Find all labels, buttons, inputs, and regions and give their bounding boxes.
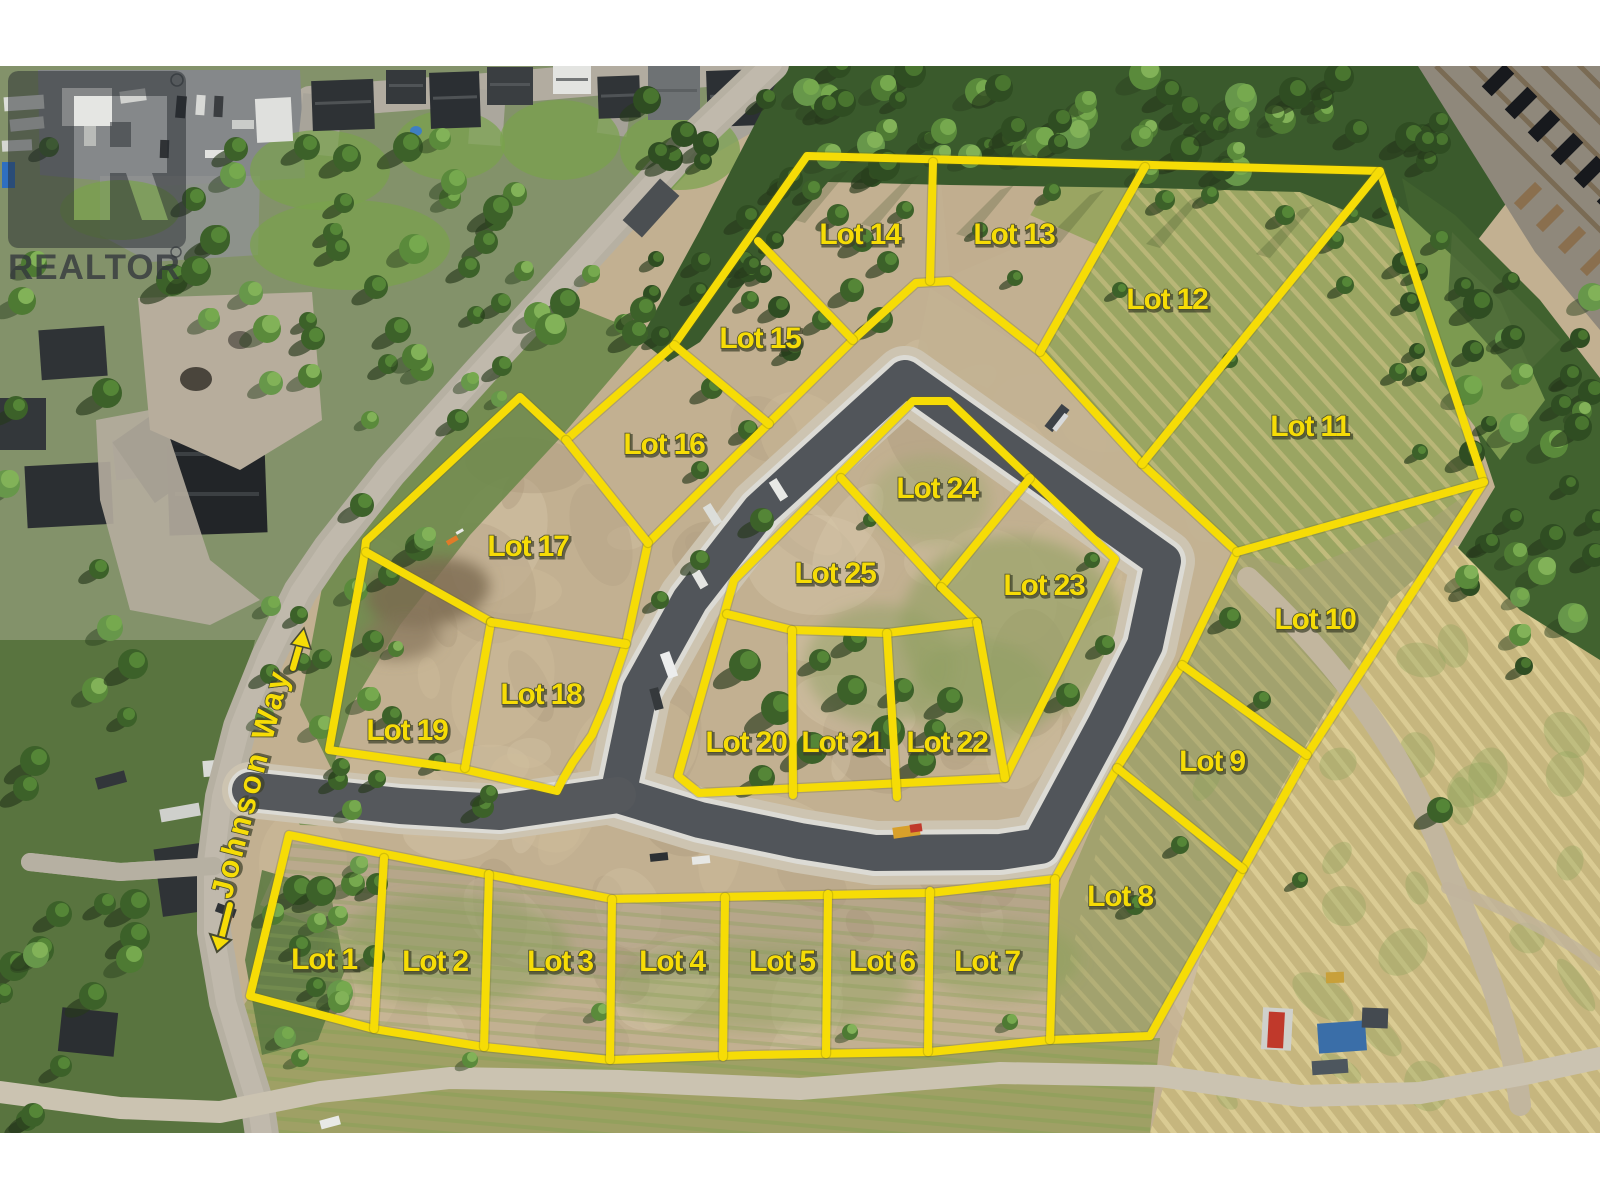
svg-text:Lot 13: Lot 13 [973, 218, 1055, 251]
svg-text:Lot 19: Lot 19 [366, 714, 448, 747]
svg-text:Lot 1: Lot 1 [291, 943, 357, 976]
svg-text:Lot 18: Lot 18 [500, 678, 582, 711]
svg-text:Lot 8: Lot 8 [1087, 880, 1153, 913]
svg-text:Lot 25: Lot 25 [794, 557, 876, 590]
svg-text:Lot 2: Lot 2 [402, 945, 468, 978]
svg-text:Lot 11: Lot 11 [1270, 410, 1350, 443]
svg-text:Lot 7: Lot 7 [954, 945, 1020, 978]
svg-text:Lot 22: Lot 22 [906, 726, 988, 759]
svg-text:Lot 15: Lot 15 [719, 322, 801, 355]
svg-text:Lot 5: Lot 5 [749, 945, 815, 978]
svg-text:Lot 3: Lot 3 [527, 945, 593, 978]
svg-text:Lot 12: Lot 12 [1126, 283, 1208, 316]
svg-text:Lot 9: Lot 9 [1179, 745, 1245, 778]
svg-text:Lot 14: Lot 14 [819, 218, 902, 251]
svg-text:Lot 21: Lot 21 [801, 726, 883, 759]
svg-text:Lot 10: Lot 10 [1274, 603, 1356, 636]
svg-text:Lot 16: Lot 16 [623, 428, 705, 461]
svg-text:Lot 23: Lot 23 [1003, 569, 1085, 602]
svg-text:Lot 6: Lot 6 [849, 945, 915, 978]
svg-text:Lot 17: Lot 17 [487, 530, 569, 563]
svg-text:REALTOR: REALTOR [8, 248, 181, 287]
svg-text:Lot 4: Lot 4 [639, 945, 706, 978]
svg-text:Lot 20: Lot 20 [705, 726, 787, 759]
svg-text:Lot 24: Lot 24 [896, 472, 979, 505]
